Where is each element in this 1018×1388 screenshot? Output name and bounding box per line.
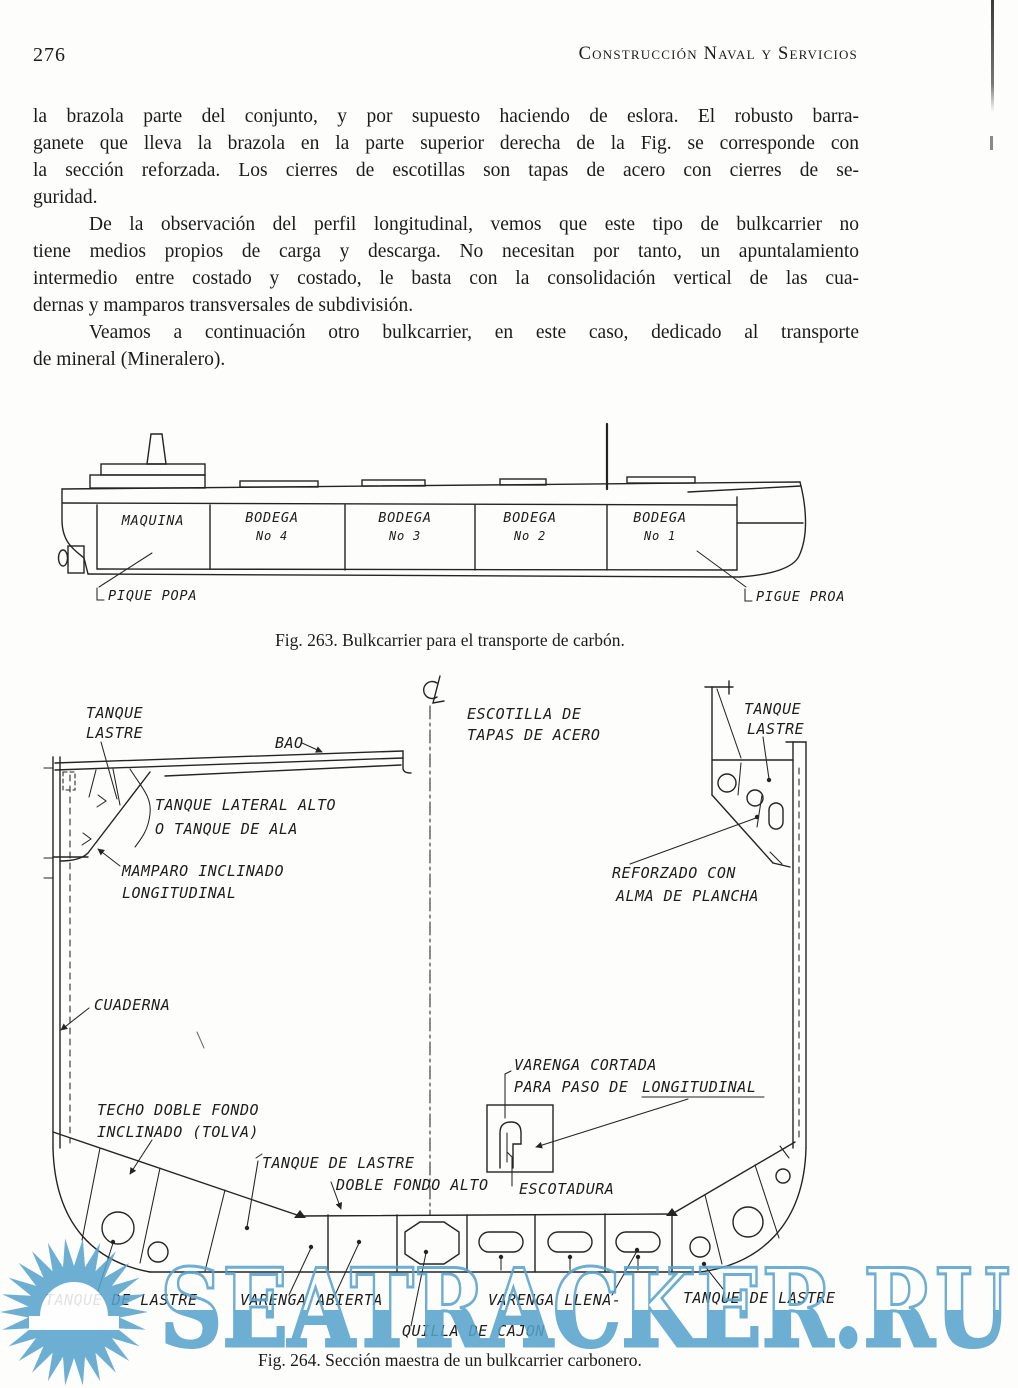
forecastle-line: [688, 486, 801, 492]
label-varenga-abierta: VARENGA ABIERTA: [240, 1291, 383, 1309]
inner-bottom: [97, 569, 737, 570]
bottom-line: [88, 574, 740, 577]
text-line: De la observación del perfil longitudina…: [33, 211, 859, 238]
label-bao: BAO: [275, 734, 304, 752]
bilge-left: [53, 1148, 150, 1272]
label-mamparo2: LONGITUDINAL: [122, 884, 236, 902]
pique-proa-leader: [697, 551, 746, 587]
scan-artifact-edge: [991, 0, 994, 112]
text-line: guridad.: [33, 184, 859, 211]
centerline-symbol: [424, 676, 444, 703]
running-header-title: Construcción Naval y Servicios: [579, 44, 858, 65]
figure-263-bulkcarrier-profile: MAQUINA BODEGA No 4 BODEGA No 3 BODEGA N…: [0, 415, 1018, 625]
text-line: dernas y mamparos transversales de subdi…: [33, 292, 859, 319]
label-pique-popa: PIQUE POPA: [108, 588, 197, 604]
bow-profile: [740, 482, 806, 577]
label-bodega-1: BODEGA: [633, 510, 687, 526]
label-tanque-lastre-bl: TANQUE DE LASTRE: [45, 1291, 198, 1309]
text-line: Veamos a continuación otro bulkcarrier, …: [33, 319, 859, 346]
hatch-coaming-end: [403, 751, 411, 773]
text-line: de mineral (Mineralero).: [33, 346, 859, 373]
figure-263-caption: Fig. 263. Bulkcarrier para el transporte…: [0, 630, 900, 651]
superstructure-upper: [101, 464, 205, 475]
label-techo2: INCLINADO (TOLVA): [97, 1123, 259, 1141]
label-techo: TECHO DOBLE FONDO: [97, 1101, 259, 1119]
label-escotilla: ESCOTILLA DE: [467, 705, 581, 723]
label-maquina: MAQUINA: [121, 513, 185, 529]
body-text: la brazola parte del conjunto, y por sup…: [33, 103, 859, 373]
text-line: ganete que lleva la brazola en la parte …: [33, 130, 859, 157]
label-cuaderna: CUADERNA: [94, 996, 170, 1014]
label-bodega-4-num: No 4: [255, 529, 288, 543]
label-tanque-lastre-mid: TANQUE DE LASTRE: [262, 1154, 415, 1172]
label-longitudinal: LONGITUDINAL: [642, 1078, 756, 1096]
label-reforzado2: ALMA DE PLANCHA: [615, 887, 759, 905]
figure-264-caption: Fig. 264. Sección maestra de un bulkcarr…: [0, 1350, 900, 1371]
label-reforzado: REFORZADO CON: [612, 864, 736, 882]
label-doble-fondo: DOBLE FONDO ALTO: [335, 1176, 489, 1194]
funnel: [147, 434, 166, 464]
label-varenga-cortada: VARENGA CORTADA: [514, 1056, 657, 1074]
propeller: [59, 550, 68, 566]
hopper-slope-left: [53, 1132, 300, 1216]
label-pique-proa: PIGUE PROA: [756, 589, 845, 605]
stray-mark: [197, 1032, 204, 1048]
text-line: intermedio entre costado y costado, le b…: [33, 265, 859, 292]
pique-popa-bracket: [97, 588, 104, 600]
scan-artifact-tick: [990, 136, 993, 150]
inner-bottom-line: [300, 1214, 672, 1216]
label-varenga-llena: VARENGA LLENA-: [488, 1291, 621, 1309]
text-line: la sección reforzada. Los cierres de esc…: [33, 157, 859, 184]
text-line: la brazola parte del conjunto, y por sup…: [33, 103, 859, 130]
hatch: [627, 477, 695, 483]
label-escotilla2: TAPAS DE ACERO: [467, 726, 600, 744]
box-keel-hole: [405, 1222, 459, 1264]
label-varenga-cortada2: PARA PASO DE: [514, 1078, 628, 1096]
label-bodega-2: BODEGA: [503, 510, 557, 526]
label-escotadura: ESCOTADURA: [519, 1180, 614, 1198]
pique-proa-bracket: [745, 589, 752, 601]
second-deck-line: [62, 503, 737, 505]
varenga-cortada-detail: [487, 1105, 553, 1172]
page-number: 276: [33, 44, 66, 67]
text-line: tiene medios propios de carga y descarga…: [33, 238, 859, 265]
label-quilla: QUILLA DE CAJON: [402, 1322, 545, 1340]
label-bodega-4: BODEGA: [245, 510, 299, 526]
manhole: [548, 1232, 592, 1252]
figure-264-midship-section: TANQUE LASTRE BAO ESCOTILLA DE TAPAS DE …: [0, 672, 1018, 1348]
label-bodega-3-num: No 3: [388, 529, 421, 543]
label-tanque-lateral2: O TANQUE DE ALA: [155, 820, 298, 838]
label-bodega-2-num: No 2: [513, 529, 546, 543]
pique-popa-leader: [99, 553, 152, 587]
label-tanque-lastre-right2: LASTRE: [747, 720, 804, 738]
label-bodega-3: BODEGA: [378, 510, 432, 526]
book-page: 276 Construcción Naval y Servicios la br…: [0, 0, 1018, 1388]
label-tanque-lastre-left: TANQUE: [86, 704, 143, 722]
label-bodega-1-num: No 1: [643, 529, 676, 543]
label-mamparo: MAMPARO INCLINADO: [121, 862, 284, 880]
label-tanque-lastre-right: TANQUE: [744, 700, 801, 718]
label-tanque-lastre-left2: LASTRE: [86, 724, 143, 742]
label-tanque-lastre-br: TANQUE DE LASTRE: [683, 1289, 836, 1307]
manhole: [479, 1232, 523, 1252]
superstructure-lower: [90, 475, 205, 488]
rudder: [68, 546, 84, 573]
label-tanque-lateral: TANQUE LATERAL ALTO: [155, 796, 336, 814]
